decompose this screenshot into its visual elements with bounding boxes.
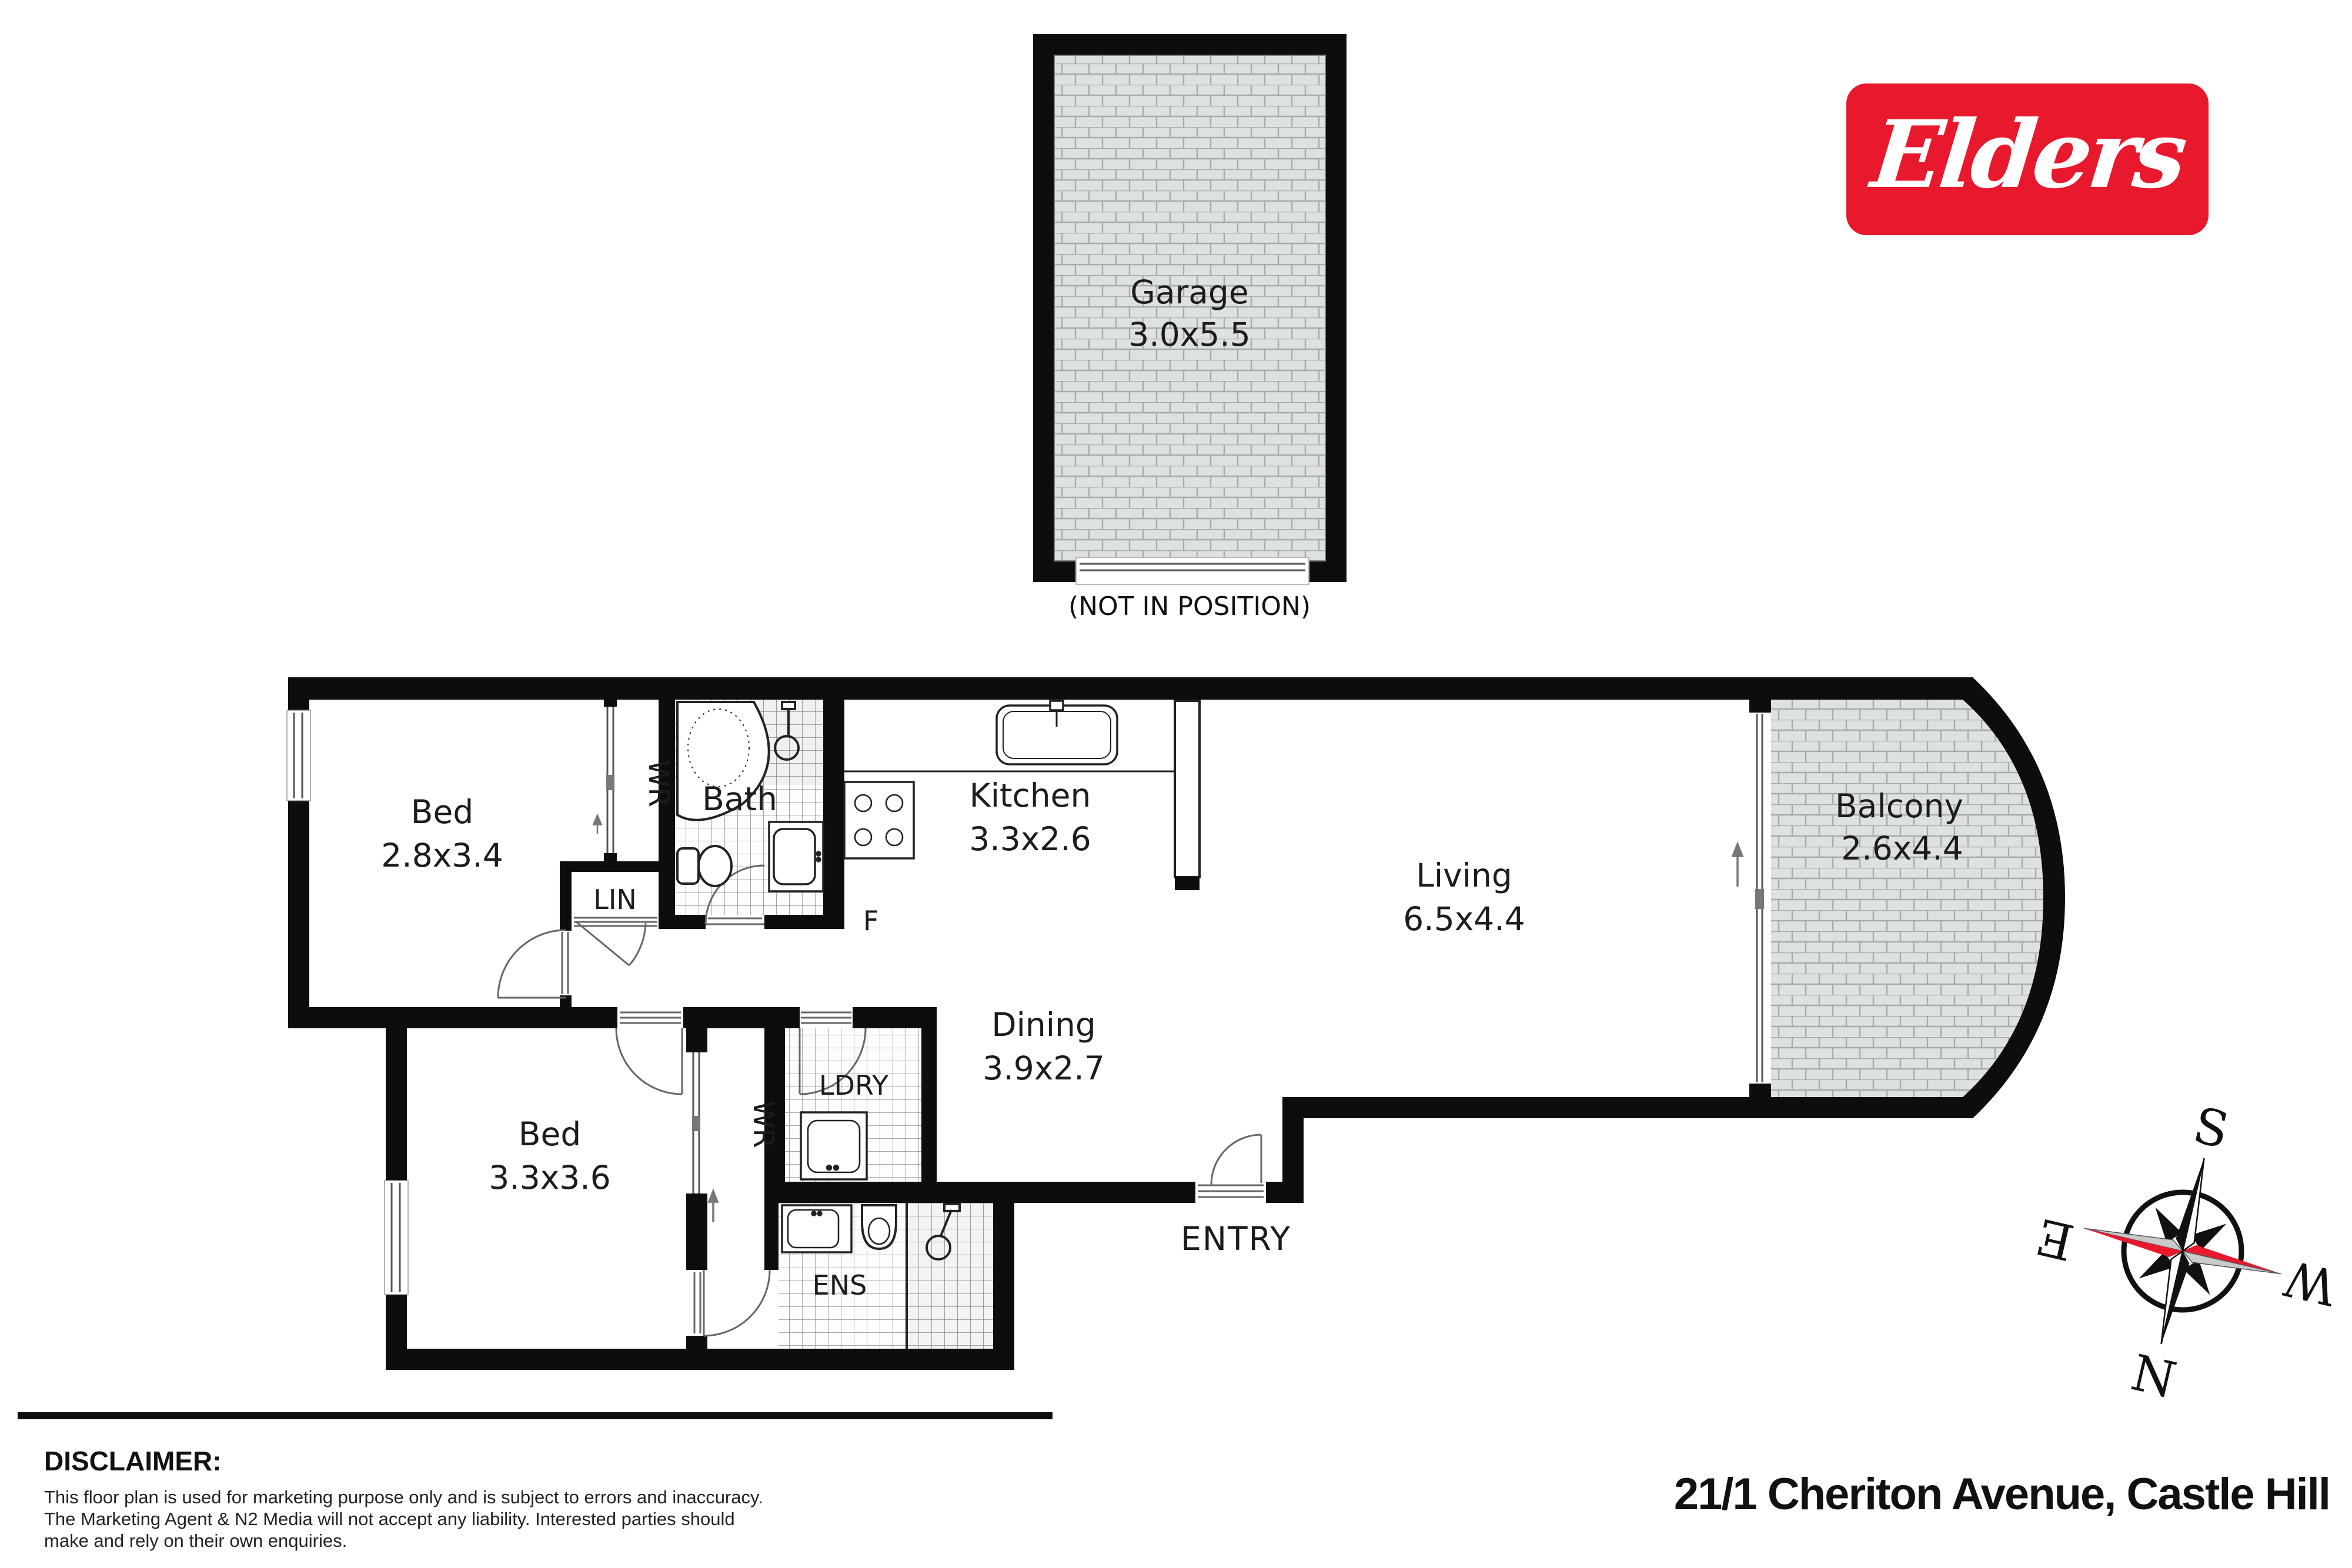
disclaimer-title: DISCLAIMER: (44, 1445, 222, 1477)
balcony-sliding-door (1755, 714, 1764, 1082)
elders-logo: Elders (1846, 83, 2209, 235)
garage-dims: 3.0x5.5 (1128, 316, 1251, 353)
balcony-dims: 2.6x4.4 (1841, 830, 1963, 867)
ensuite-toilet (862, 1205, 896, 1249)
footer-divider (18, 1412, 1053, 1419)
bed1-label: Bed (411, 793, 473, 831)
kitchen-dims: 3.3x2.6 (969, 820, 1091, 858)
compass-north: N (2126, 1343, 2181, 1409)
ensuite-vanity (782, 1205, 851, 1252)
elders-logo-text: Elders (1867, 101, 2189, 209)
garage-door (1076, 557, 1309, 584)
living-label: Living (1416, 857, 1512, 894)
linen-label: LIN (593, 884, 637, 915)
garage-label: Garage (1130, 273, 1248, 311)
floorplan-page: Garage 3.0x5.5 (NOT IN POSITION) Balcony… (0, 0, 2352, 1568)
ensuite-door (694, 1270, 770, 1336)
stove (844, 782, 914, 858)
compass-south: S (2188, 1096, 2234, 1159)
wr1-arrow (594, 816, 601, 834)
balcony-label: Balcony (1835, 787, 1963, 825)
disclaimer-text: This floor plan is used for marketing pu… (44, 1486, 763, 1552)
compass-rose: S N E W (2006, 1067, 2352, 1440)
wr1-sliding-door (606, 707, 614, 853)
entry-label: ENTRY (1181, 1220, 1291, 1258)
wr2-sliding-door (692, 1052, 700, 1193)
compass-east: E (2031, 1207, 2079, 1271)
ensuite-label: ENS (813, 1269, 867, 1301)
bath-vanity (769, 822, 823, 891)
dining-label: Dining (991, 1006, 1096, 1044)
bed2-label: Bed (519, 1115, 581, 1153)
garage-room: Garage 3.0x5.5 (1033, 34, 1347, 584)
dining-dims: 3.9x2.7 (983, 1049, 1105, 1087)
compass-west: W (2279, 1249, 2342, 1316)
floorplan-drawing: Garage 3.0x5.5 (NOT IN POSITION) Balcony… (0, 0, 2352, 1568)
wr1-label: WR (642, 760, 675, 807)
washing-machine (801, 1112, 867, 1179)
bed2-door (616, 1012, 682, 1094)
bed2-window (385, 1181, 408, 1295)
property-address: 21/1 Cheriton Avenue, Castle Hill (1674, 1469, 2330, 1520)
bath-label: Bath (702, 780, 777, 818)
entry-door (1198, 1135, 1264, 1197)
laundry-label: LDRY (819, 1069, 889, 1101)
bed1-door (498, 930, 568, 998)
balcony-floor (1771, 700, 2043, 1097)
fridge-label: F (863, 905, 878, 937)
wr2-arrow (709, 1191, 717, 1222)
kitchen-peninsula (1175, 701, 1200, 890)
balcony-arrow (1733, 844, 1742, 887)
linen-door (574, 918, 657, 965)
bed1-window (287, 710, 310, 801)
bed1-dims: 2.8x3.4 (381, 837, 503, 874)
kitchen-label: Kitchen (970, 777, 1091, 814)
wr2-label: WR (747, 1101, 780, 1148)
garage-note: (NOT IN POSITION) (1068, 591, 1311, 621)
balcony-room: Balcony 2.6x4.4 (1771, 677, 2065, 1118)
living-dims: 6.5x4.4 (1403, 900, 1525, 938)
bed2-dims: 3.3x3.6 (489, 1159, 611, 1196)
kitchen-sink (997, 701, 1117, 764)
bath-toilet (677, 846, 731, 886)
